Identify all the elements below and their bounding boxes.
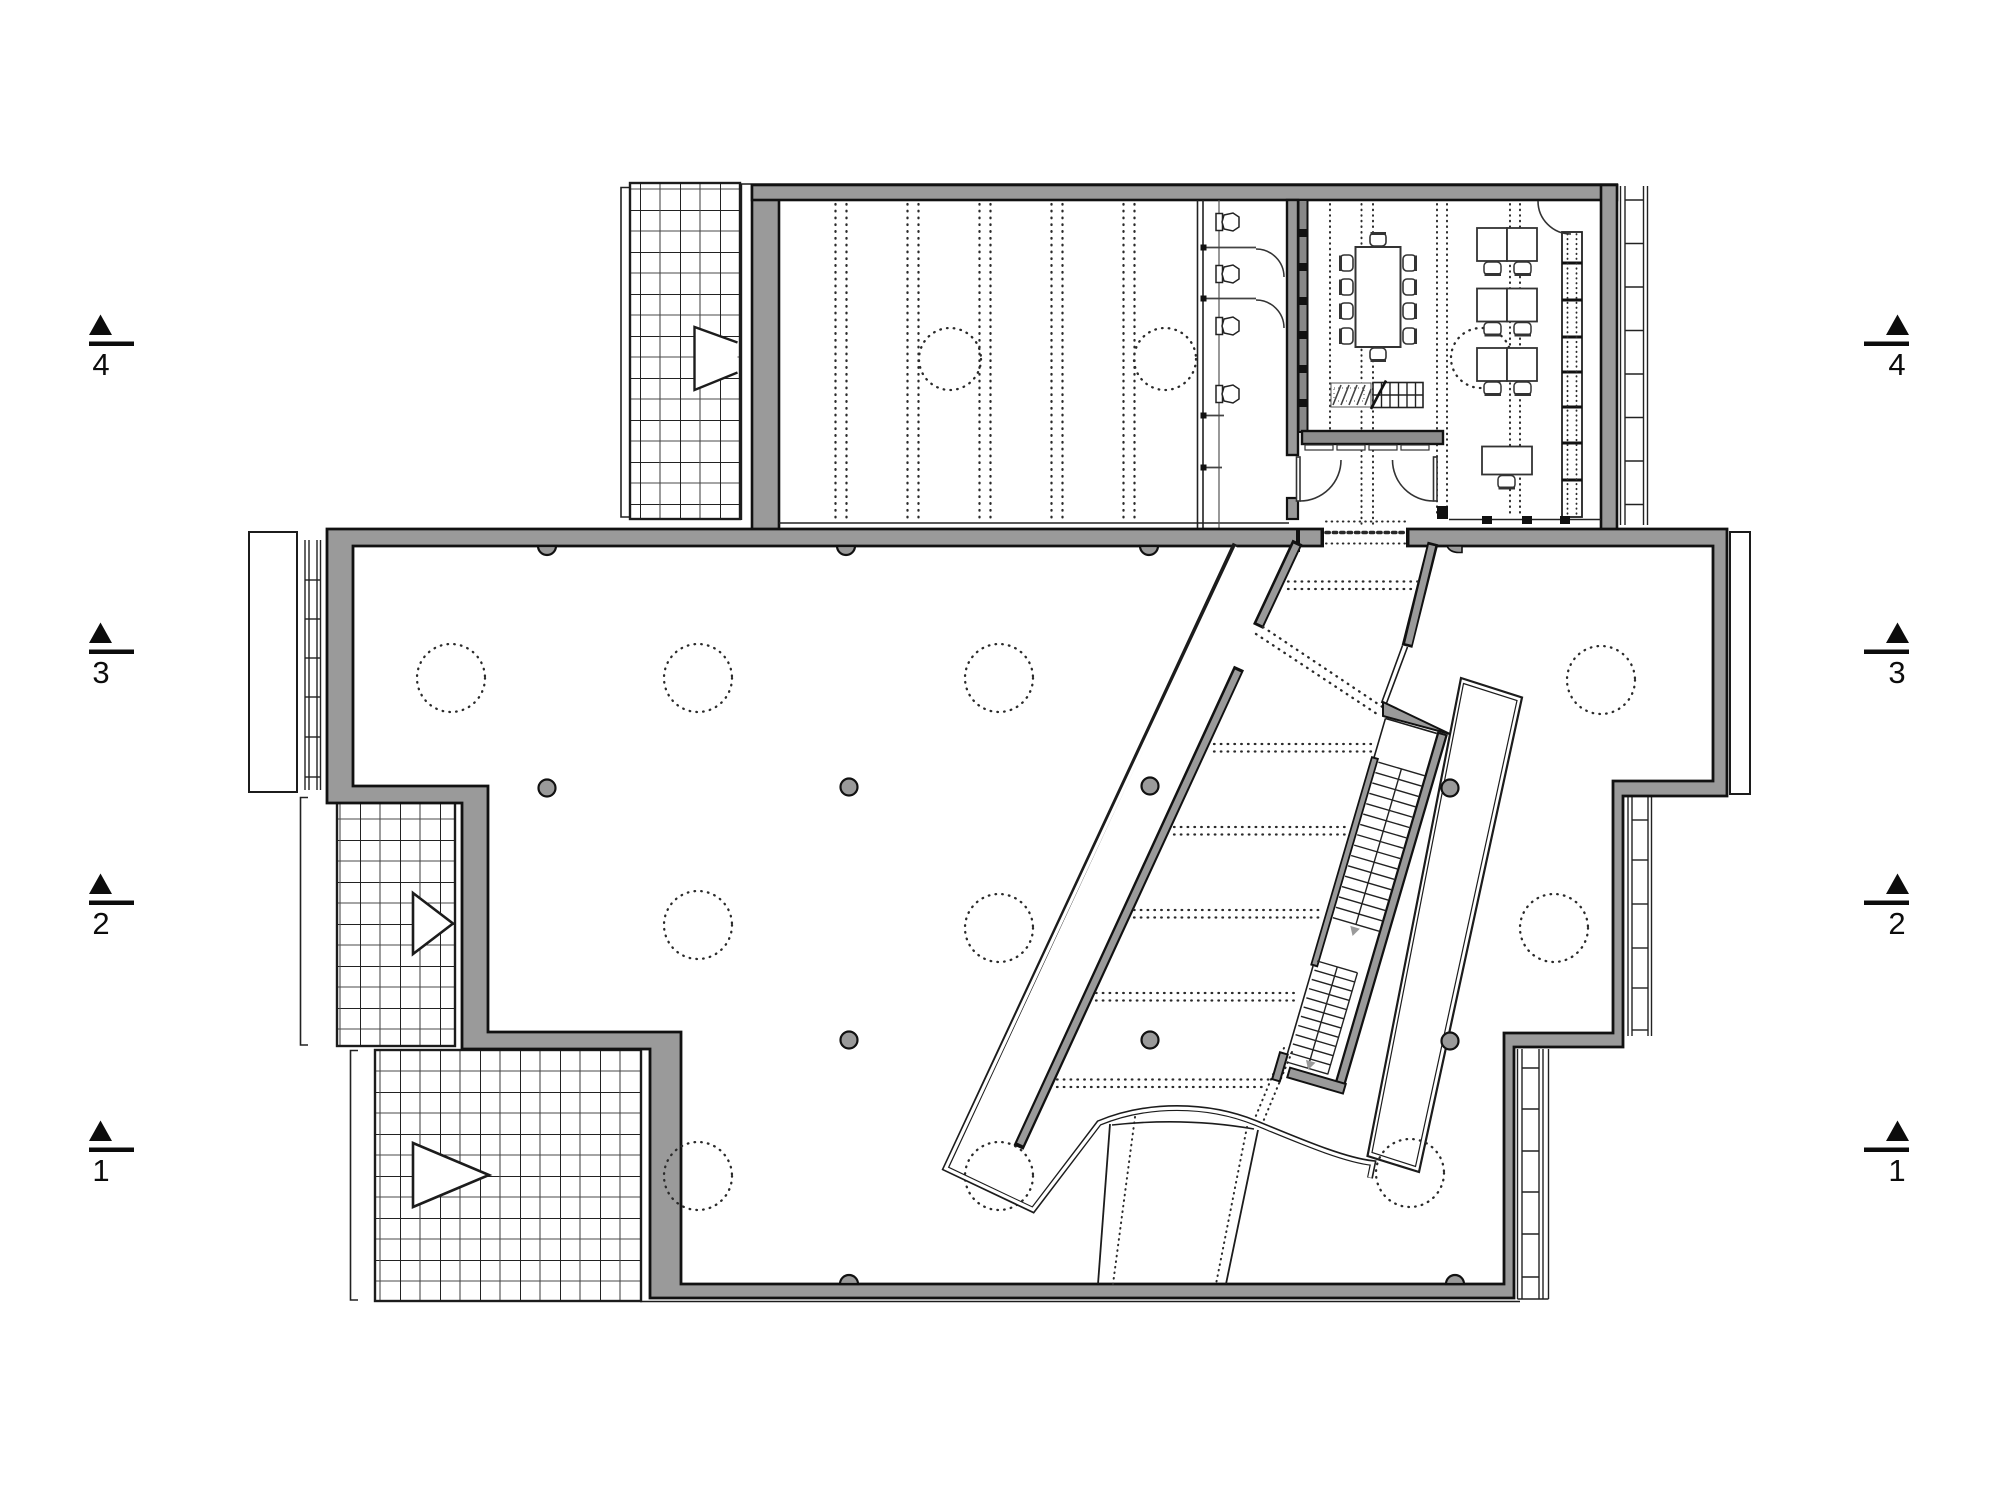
- svg-text:1: 1: [92, 1153, 109, 1188]
- svg-text:2: 2: [1888, 906, 1905, 941]
- svg-text:1: 1: [1888, 1153, 1905, 1188]
- svg-text:3: 3: [92, 655, 109, 690]
- svg-text:4: 4: [1888, 347, 1905, 382]
- svg-text:3: 3: [1888, 655, 1905, 690]
- svg-text:2: 2: [92, 906, 109, 941]
- svg-text:4: 4: [92, 347, 109, 382]
